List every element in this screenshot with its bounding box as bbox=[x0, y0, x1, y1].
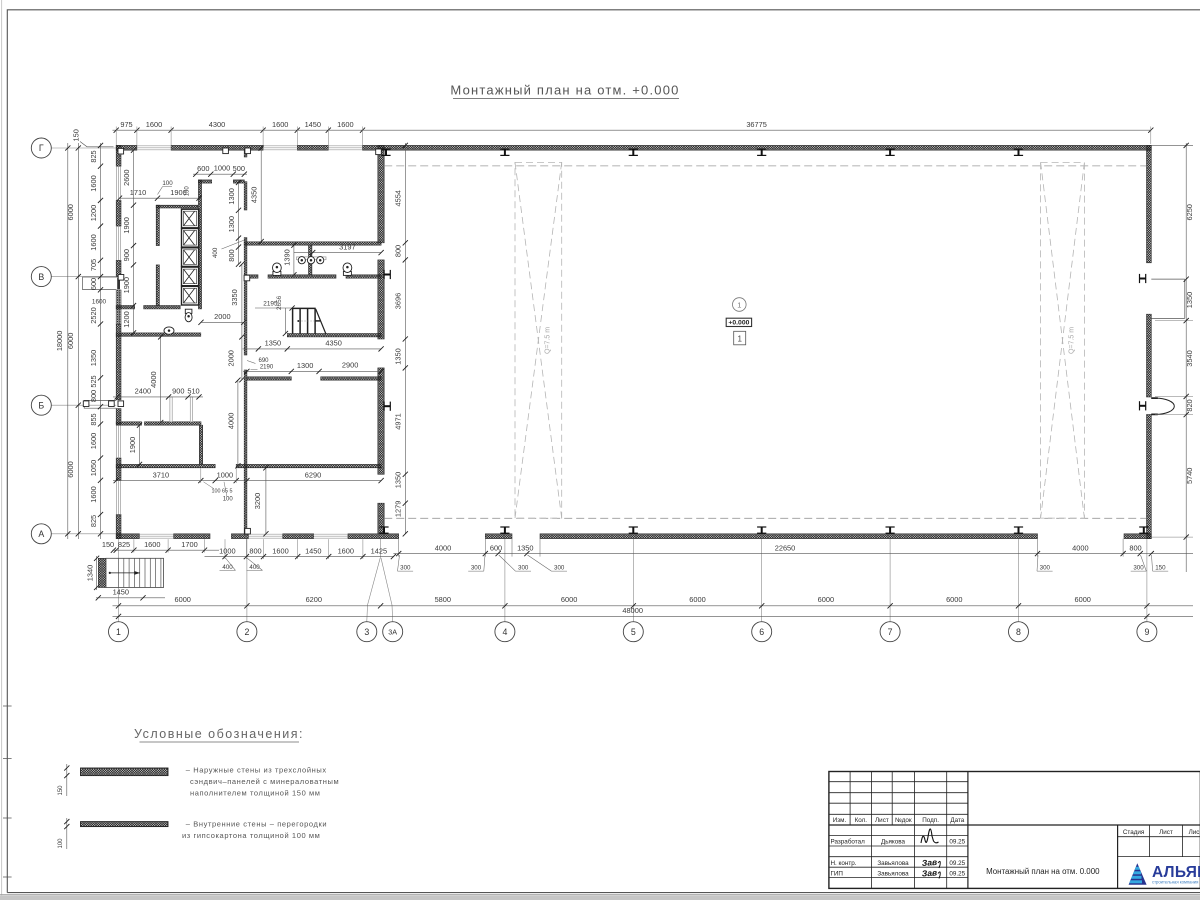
svg-text:строительная компания: строительная компания bbox=[1152, 879, 1198, 884]
